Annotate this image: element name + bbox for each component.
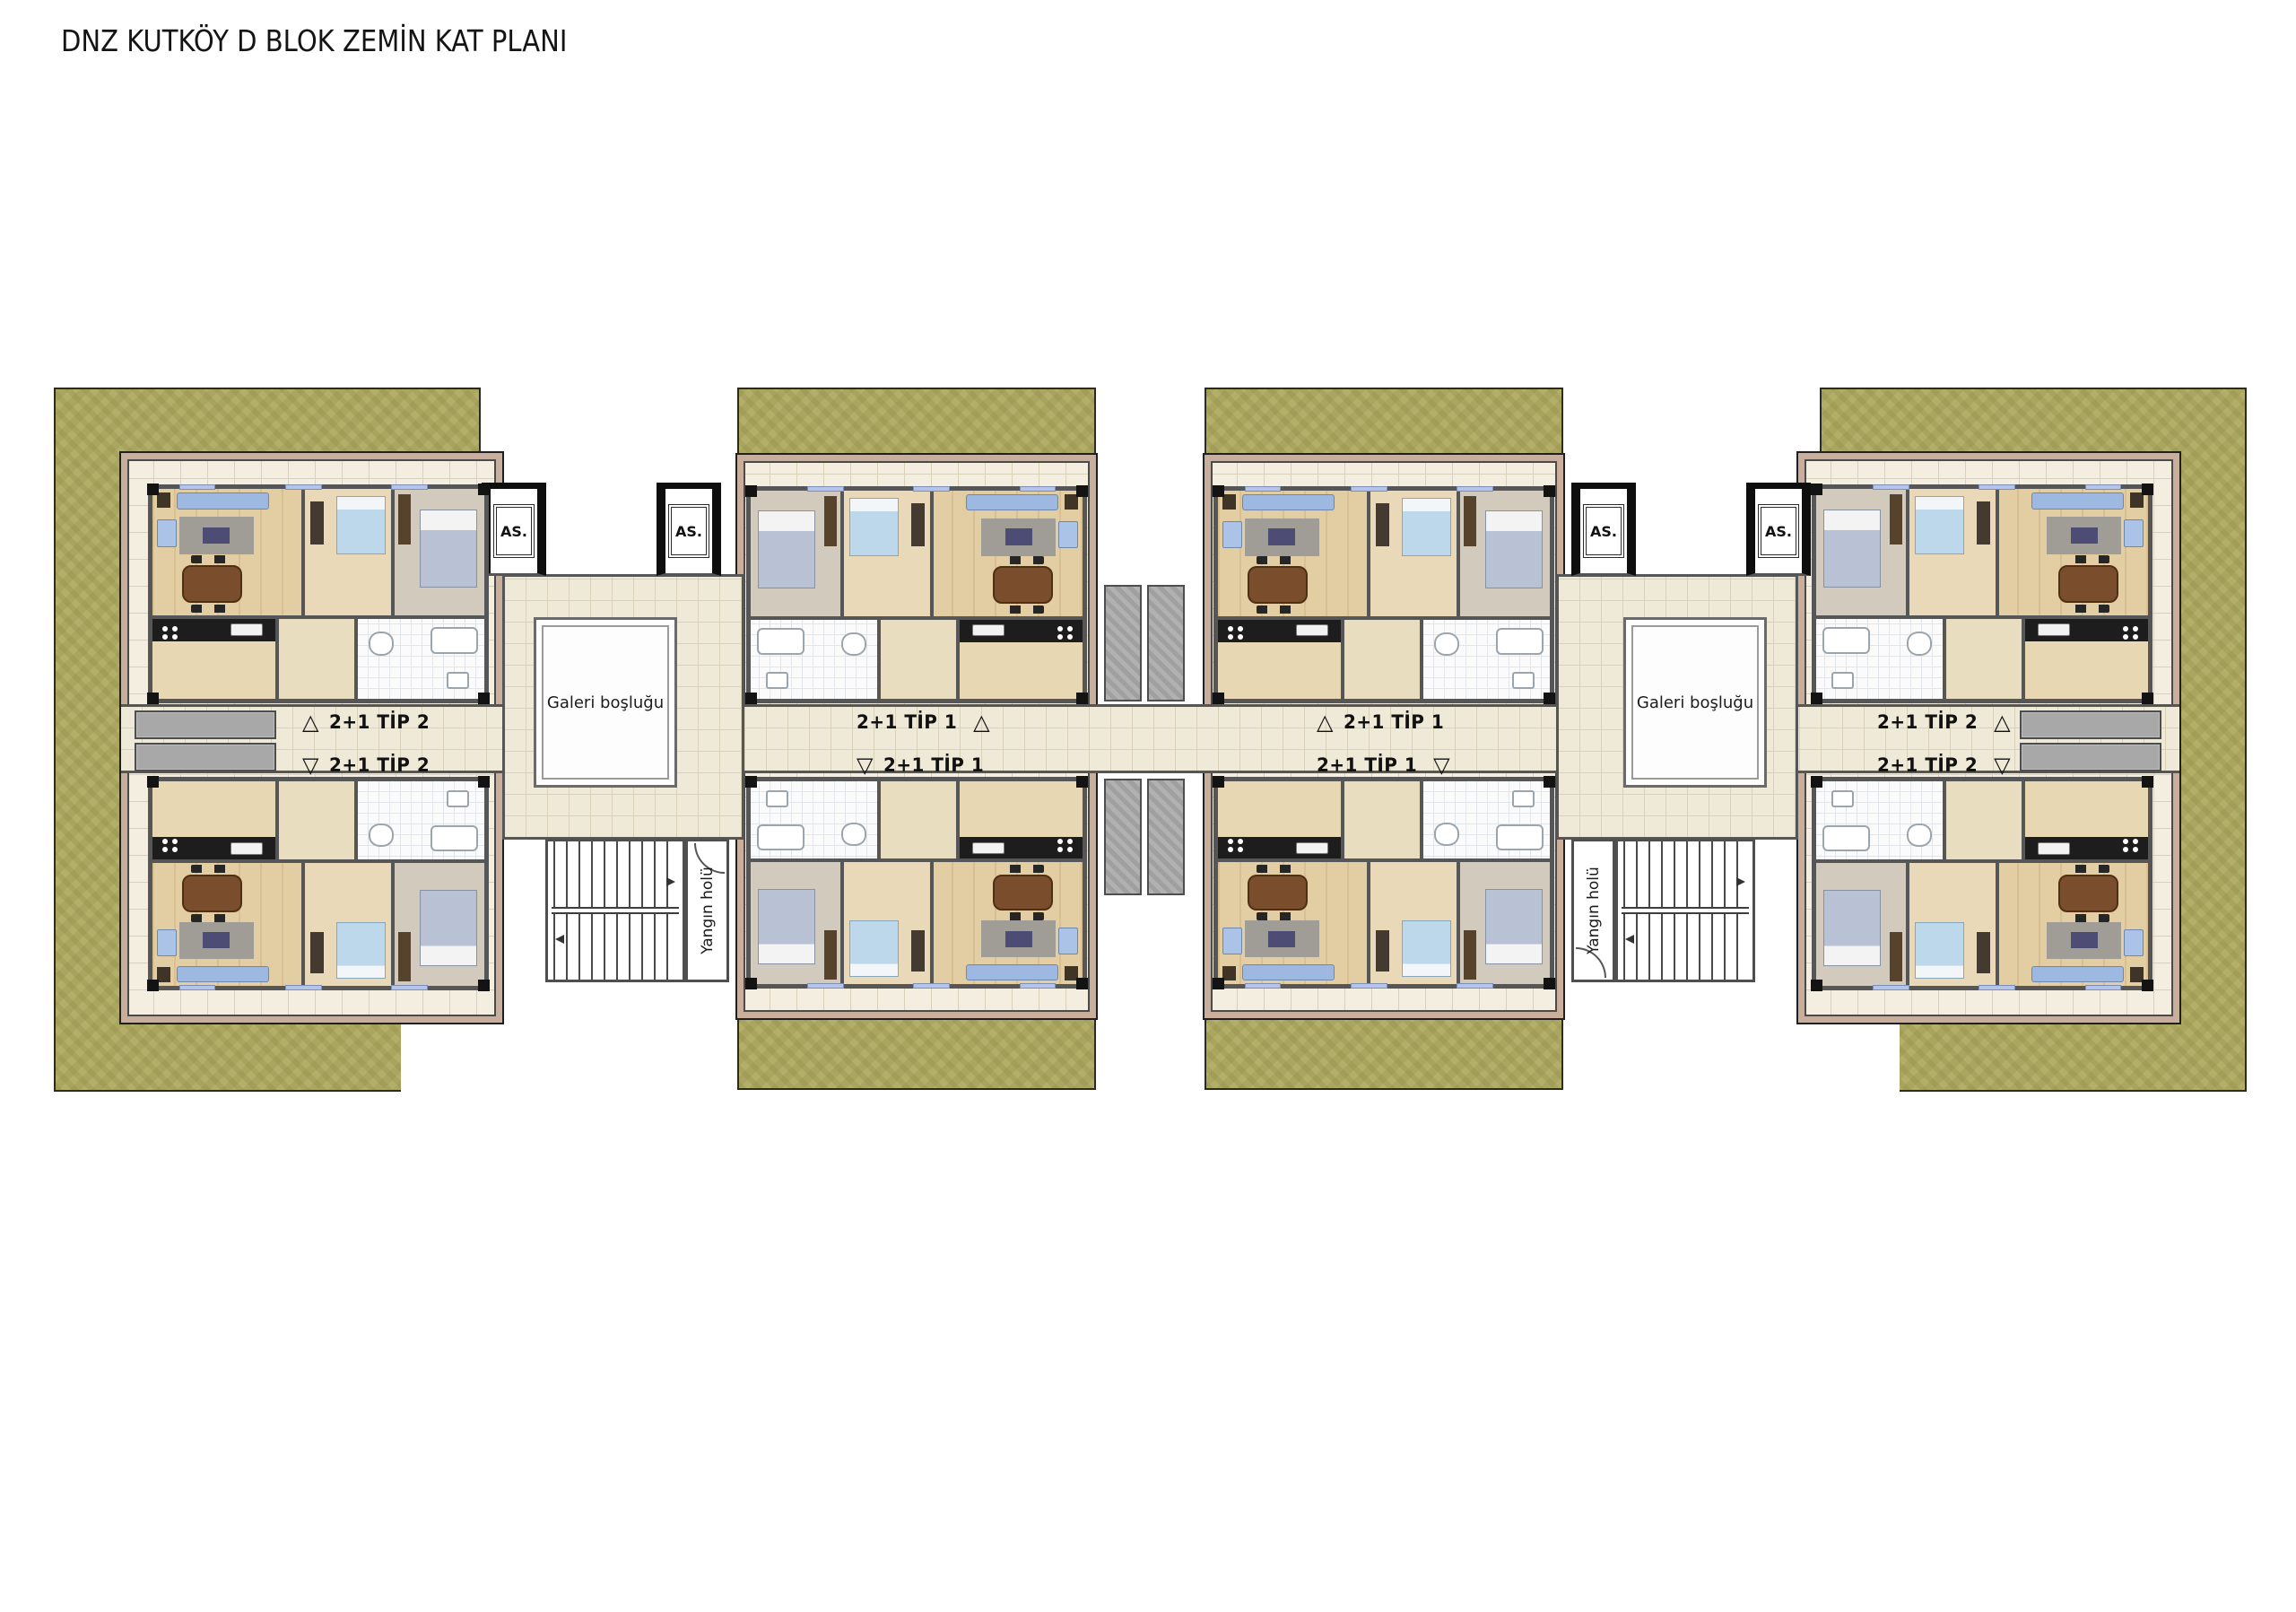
corner-pillar — [1811, 980, 1822, 991]
corner-pillar — [147, 776, 159, 788]
kitchen-counter — [960, 837, 1083, 858]
kitchen — [2022, 619, 2148, 699]
window — [285, 484, 322, 490]
elevator-shaft: AS. — [657, 483, 721, 576]
elevator-label: AS. — [675, 523, 702, 540]
apartment-body — [1213, 486, 1554, 703]
sofa — [2031, 492, 2124, 509]
bathroom — [1816, 619, 1943, 699]
corner-pillar — [1076, 485, 1088, 497]
armchair — [1222, 521, 1242, 549]
armchair — [1058, 521, 1078, 549]
kitchen — [152, 781, 279, 859]
unit-label-left-lower: ▽ 2+1 TİP 2 — [302, 753, 436, 778]
window — [1351, 983, 1387, 989]
hallway — [1943, 619, 2022, 699]
desk — [310, 501, 324, 545]
armchair — [2124, 929, 2144, 956]
apartment-body — [746, 486, 1087, 703]
dining-table — [1248, 875, 1307, 911]
double-bed — [758, 889, 815, 964]
coffee-table — [1005, 528, 1032, 545]
corner-pillar — [1213, 693, 1224, 704]
bathroom-sink — [447, 672, 469, 690]
bathroom — [1816, 781, 1943, 859]
apartment-unit — [1812, 777, 2152, 990]
up-arrow-icon: △ — [302, 711, 318, 733]
bathroom-sink — [766, 790, 788, 807]
small-bedroom — [1906, 859, 1996, 986]
bathroom-sink — [447, 790, 469, 807]
rug — [179, 922, 254, 959]
elevator-car: AS. — [668, 504, 709, 558]
rug — [179, 517, 254, 554]
bathtub — [430, 825, 478, 851]
corridor-mat — [135, 743, 276, 771]
living-room — [1218, 491, 1370, 620]
rug — [981, 920, 1056, 957]
stove-burners — [162, 626, 168, 632]
corner-pillar — [478, 693, 490, 704]
hallway — [1943, 781, 2022, 859]
living-room — [930, 858, 1083, 984]
bathtub — [757, 628, 804, 655]
sofa — [966, 964, 1058, 980]
corner-pillar — [745, 485, 757, 497]
kitchen — [956, 781, 1083, 858]
sofa — [1242, 964, 1335, 980]
down-arrow-icon: ▽ — [1994, 754, 2010, 776]
fire-hall-label: Yangın holü — [699, 867, 717, 954]
master-bedroom — [1460, 858, 1550, 984]
small-bedroom — [1370, 858, 1460, 984]
corner-pillar — [1213, 978, 1224, 989]
sofa — [1242, 494, 1335, 510]
double-bed — [1485, 889, 1543, 964]
page-title: DNZ KUTKÖY D BLOK ZEMİN KAT PLANI — [61, 23, 567, 58]
corridor-mat — [135, 710, 276, 739]
kitchen-sink — [1296, 624, 1328, 637]
apartment-body — [1812, 484, 2152, 703]
bathtub — [1822, 627, 1870, 654]
apartment-body — [148, 484, 489, 703]
elevator-shaft: AS. — [1571, 483, 1636, 576]
window — [807, 983, 844, 989]
window — [1873, 484, 1909, 490]
corner-pillar — [147, 484, 159, 495]
wardrobe — [398, 932, 411, 981]
kitchen — [2022, 781, 2148, 859]
window — [913, 983, 950, 989]
kitchen-counter — [1218, 620, 1341, 642]
stair-direction-arrow — [666, 877, 675, 886]
double-bed — [758, 510, 815, 588]
window — [2085, 484, 2122, 490]
coffee-table — [203, 527, 230, 545]
armchair — [2124, 519, 2144, 547]
elevator-label: AS. — [1590, 523, 1617, 540]
bathtub — [1496, 824, 1544, 850]
hallway — [279, 781, 359, 859]
coffee-table — [1268, 528, 1295, 545]
apartment-body — [1213, 777, 1554, 989]
kitchen-counter — [152, 837, 275, 858]
unit-label-left-upper: △ 2+1 TİP 2 — [302, 710, 436, 735]
window — [179, 985, 216, 990]
toilet — [1434, 823, 1459, 846]
corner-pillar — [2142, 484, 2153, 495]
kitchen-sink — [2038, 623, 2070, 636]
toilet — [1907, 632, 1932, 656]
apartment-unit — [148, 777, 489, 990]
kitchen-sink — [972, 624, 1004, 637]
gallery-void-label: Galeri boşluğu — [547, 693, 664, 712]
master-bedroom — [395, 489, 484, 619]
wardrobe — [824, 930, 837, 979]
bathroom-sink — [766, 672, 788, 689]
living-room — [1218, 858, 1370, 984]
elevator-shaft: AS. — [482, 483, 546, 576]
apartment-unit — [1812, 484, 2152, 703]
corner-pillar — [478, 484, 490, 495]
unit-label-right-upper: 2+1 TİP 2 △ — [1877, 710, 2011, 735]
corner-pillar — [147, 980, 159, 991]
apartment-unit — [1213, 486, 1554, 703]
small-bedroom — [1370, 491, 1460, 620]
stove-burners — [2133, 847, 2138, 852]
sofa — [177, 492, 269, 509]
up-arrow-icon: △ — [973, 711, 989, 733]
living-room — [1996, 489, 2148, 619]
rug — [1245, 518, 1319, 556]
staircase-right — [1615, 839, 1755, 982]
grass-cutout-right — [1796, 1023, 1900, 1094]
living-room — [152, 489, 305, 619]
corner-pillar — [1076, 776, 1088, 788]
single-bed — [849, 498, 900, 555]
bathroom — [1423, 620, 1550, 699]
armchair — [157, 519, 177, 547]
window — [2085, 985, 2122, 990]
window — [1020, 983, 1057, 989]
kitchen — [1218, 781, 1344, 858]
apartment-body — [148, 777, 489, 990]
small-bedroom — [840, 491, 930, 620]
master-bedroom — [1816, 859, 1906, 986]
center-balcony — [1147, 779, 1185, 895]
stair-direction-arrow — [1736, 877, 1745, 886]
bathroom-sink — [1831, 790, 1854, 807]
gallery-void-label: Galeri boşluğu — [1637, 693, 1753, 712]
center-balcony — [1147, 585, 1185, 701]
corner-pillar — [1076, 978, 1088, 989]
apartment-unit — [746, 486, 1087, 703]
elevator-label: AS. — [1765, 523, 1792, 540]
corner-pillar — [147, 693, 159, 704]
stair-landing-divider — [552, 907, 679, 914]
elevator-label: AS. — [500, 523, 527, 540]
armchair — [1222, 928, 1242, 954]
bathroom — [358, 781, 484, 859]
elevator-car: AS. — [1758, 504, 1799, 558]
window — [1245, 983, 1282, 989]
toilet — [841, 632, 866, 656]
apartment-body — [746, 777, 1087, 989]
kitchen-sink — [1296, 842, 1328, 854]
corner-pillar — [1811, 693, 1822, 704]
window — [1457, 983, 1493, 989]
hallway — [279, 619, 359, 699]
rug — [1245, 920, 1319, 957]
fire-hall-right: Yangın holü — [1571, 839, 1615, 982]
corner-pillar — [478, 776, 490, 788]
unit-label-mid-right-lower: 2+1 TİP 1 ▽ — [1317, 753, 1450, 778]
elevator-shaft: AS. — [1746, 483, 1811, 576]
window — [179, 484, 216, 490]
corner-pillar — [745, 978, 757, 989]
window — [391, 985, 428, 990]
sofa — [966, 494, 1058, 510]
bathroom — [1423, 781, 1550, 858]
master-bedroom — [395, 859, 484, 986]
corner-pillar — [478, 980, 490, 991]
gallery-void-left: Galeri boşluğu — [534, 617, 677, 788]
center-balcony — [1104, 585, 1142, 701]
rug — [2047, 922, 2121, 959]
kitchen — [1218, 620, 1344, 699]
wardrobe — [824, 496, 837, 546]
stove-burners — [1228, 626, 1233, 632]
living-room — [930, 491, 1083, 620]
double-bed — [420, 890, 477, 966]
stove-burners — [1067, 847, 1073, 852]
bathtub — [757, 824, 804, 850]
window — [913, 486, 950, 492]
hallway — [1344, 620, 1424, 699]
side-table — [157, 492, 170, 508]
bathroom-sink — [1831, 672, 1854, 690]
small-bedroom — [840, 858, 930, 984]
corner-pillar — [1544, 776, 1555, 788]
coffee-table — [2071, 527, 2098, 545]
window — [391, 484, 428, 490]
down-arrow-icon: ▽ — [302, 754, 318, 776]
kitchen — [956, 620, 1083, 699]
stove-burners — [1067, 626, 1073, 632]
single-bed — [1915, 496, 1965, 554]
elevator-car: AS. — [1583, 504, 1624, 558]
window — [1873, 985, 1909, 990]
window — [285, 985, 322, 990]
corner-pillar — [1544, 693, 1555, 704]
window — [1979, 484, 2015, 490]
center-balcony — [1104, 779, 1142, 895]
double-bed — [1823, 890, 1881, 966]
corridor-mat — [2020, 743, 2161, 771]
stair-direction-arrow — [555, 935, 564, 944]
desk — [1977, 501, 1990, 545]
fire-hall-left: Yangın holü — [685, 839, 729, 982]
corner-pillar — [2142, 776, 2153, 788]
single-bed — [336, 922, 387, 979]
single-bed — [336, 496, 387, 554]
coffee-table — [1005, 931, 1032, 947]
corner-pillar — [745, 776, 757, 788]
toilet — [369, 823, 394, 847]
side-table — [1222, 494, 1236, 510]
hallway — [1344, 781, 1424, 858]
unit-label-right-lower: 2+1 TİP 2 ▽ — [1877, 753, 2011, 778]
apartment-body — [1812, 777, 2152, 990]
unit-label-mid-right-upper: △ 2+1 TİP 1 — [1317, 710, 1450, 735]
corner-pillar — [1076, 693, 1088, 704]
side-table — [157, 967, 170, 981]
corner-pillar — [745, 693, 757, 704]
bathroom — [751, 781, 877, 858]
corner-pillar — [2142, 980, 2153, 991]
down-arrow-icon: ▽ — [1433, 754, 1449, 776]
desk — [911, 503, 925, 546]
corner-pillar — [1544, 485, 1555, 497]
fire-hall-label: Yangın holü — [1585, 867, 1603, 954]
single-bed — [849, 920, 900, 977]
up-arrow-icon: △ — [1994, 711, 2010, 733]
side-table — [1222, 966, 1236, 980]
master-bedroom — [751, 491, 840, 620]
bathroom-sink — [1512, 672, 1535, 689]
coffee-table — [203, 932, 230, 948]
up-arrow-icon: △ — [1317, 711, 1333, 733]
kitchen-counter — [2025, 837, 2148, 858]
window — [1351, 486, 1387, 492]
apartment-unit — [746, 777, 1087, 989]
kitchen-counter — [2025, 619, 2148, 641]
desk — [1376, 503, 1389, 546]
small-bedroom — [305, 859, 395, 986]
master-bedroom — [1816, 489, 1906, 619]
desk — [1376, 930, 1389, 972]
toilet — [841, 823, 866, 846]
kitchen-sink — [230, 623, 263, 636]
kitchen-counter — [960, 620, 1083, 642]
bathroom — [358, 619, 484, 699]
armchair — [1058, 928, 1078, 954]
corner-pillar — [2142, 693, 2153, 704]
sofa — [177, 966, 269, 982]
apartment-unit — [148, 484, 489, 703]
dining-table — [993, 875, 1052, 911]
double-bed — [420, 510, 477, 588]
wardrobe — [1890, 932, 1902, 981]
bathroom — [751, 620, 877, 699]
kitchen-counter — [152, 619, 275, 641]
grass-cutout-left — [401, 1023, 504, 1094]
window — [1245, 486, 1282, 492]
corner-pillar — [1811, 484, 1822, 495]
wardrobe — [1890, 494, 1902, 545]
bathtub — [1496, 628, 1544, 655]
window — [1020, 486, 1057, 492]
bathtub — [1822, 825, 1870, 851]
dining-table — [182, 565, 241, 603]
wardrobe — [398, 494, 411, 545]
window — [1457, 486, 1493, 492]
desk — [1977, 932, 1990, 974]
living-room — [1996, 859, 2148, 986]
living-room — [152, 859, 305, 986]
apartment-unit — [1213, 777, 1554, 989]
coffee-table — [2071, 932, 2098, 948]
single-bed — [1402, 498, 1452, 555]
stove-burners — [1228, 847, 1233, 852]
kitchen — [152, 619, 279, 699]
kitchen-sink — [972, 842, 1004, 854]
kitchen-sink — [230, 842, 263, 854]
window — [807, 486, 844, 492]
coffee-table — [1268, 931, 1295, 947]
rug — [2047, 517, 2121, 554]
corner-pillar — [1544, 978, 1555, 989]
corner-pillar — [1811, 776, 1822, 788]
small-bedroom — [305, 489, 395, 619]
bathroom-sink — [1512, 790, 1535, 807]
down-arrow-icon: ▽ — [857, 754, 873, 776]
unit-label-mid-left-upper: 2+1 TİP 1 △ — [857, 710, 990, 735]
wardrobe — [1464, 930, 1476, 979]
staircase-left — [545, 839, 685, 982]
small-bedroom — [1906, 489, 1996, 619]
desk — [911, 930, 925, 972]
toilet — [1434, 632, 1459, 656]
dining-table — [182, 875, 241, 911]
armchair — [157, 929, 177, 956]
unit-label-mid-left-lower: ▽ 2+1 TİP 1 — [857, 753, 990, 778]
double-bed — [1823, 510, 1881, 588]
elevator-car: AS. — [493, 504, 535, 558]
bathtub — [430, 627, 478, 654]
gallery-void-right: Galeri boşluğu — [1623, 617, 1767, 788]
stove-burners — [162, 847, 168, 852]
corner-pillar — [1213, 485, 1224, 497]
floor-plan-canvas: DNZ KUTKÖY D BLOK ZEMİN KAT PLANI Galeri… — [0, 0, 2296, 1612]
stair-direction-arrow — [1625, 935, 1634, 944]
dining-table — [2058, 875, 2118, 911]
stair-landing-divider — [1622, 907, 1749, 914]
hallway — [877, 620, 957, 699]
stove-burners — [2133, 626, 2138, 632]
wardrobe — [1464, 496, 1476, 546]
master-bedroom — [1460, 491, 1550, 620]
dining-table — [993, 566, 1052, 604]
toilet — [369, 632, 394, 656]
toilet — [1907, 823, 1932, 847]
rug — [981, 518, 1056, 556]
single-bed — [1915, 922, 1965, 979]
desk — [310, 932, 324, 974]
corner-pillar — [1213, 776, 1224, 788]
hallway — [877, 781, 957, 858]
window — [1979, 985, 2015, 990]
dining-table — [2058, 565, 2118, 603]
kitchen-sink — [2038, 842, 2070, 854]
master-bedroom — [751, 858, 840, 984]
kitchen-counter — [1218, 837, 1341, 858]
corridor-mat — [2020, 710, 2161, 739]
sofa — [2031, 966, 2124, 982]
double-bed — [1485, 510, 1543, 588]
dining-table — [1248, 566, 1307, 604]
single-bed — [1402, 920, 1452, 977]
